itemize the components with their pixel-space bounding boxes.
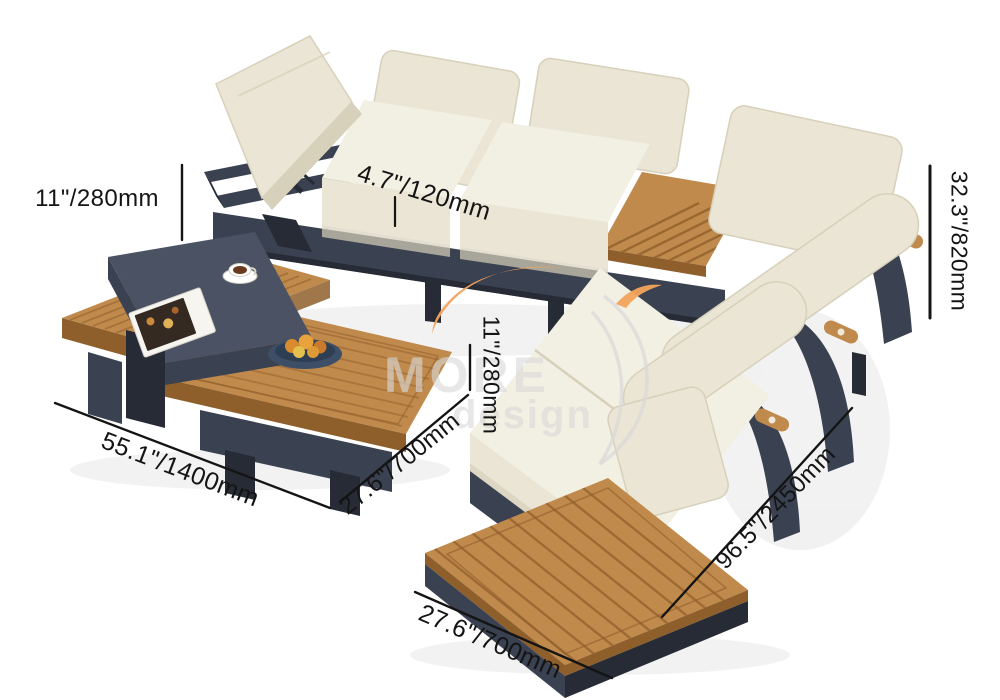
coffee-table-leg [88, 352, 122, 424]
sofa-leg [852, 352, 866, 396]
dimension-label-overall-height: 32.3"/820mm [946, 171, 973, 311]
product-dimension-image: MORE design 11"/280mm 4.7"/120mm 32.3"/8… [0, 0, 1000, 700]
dimension-label-seat-height: 11"/280mm [478, 316, 505, 435]
watermark-brand-bottom: design [452, 393, 593, 437]
dimension-label-backrest-height: 11"/280mm [35, 185, 159, 213]
